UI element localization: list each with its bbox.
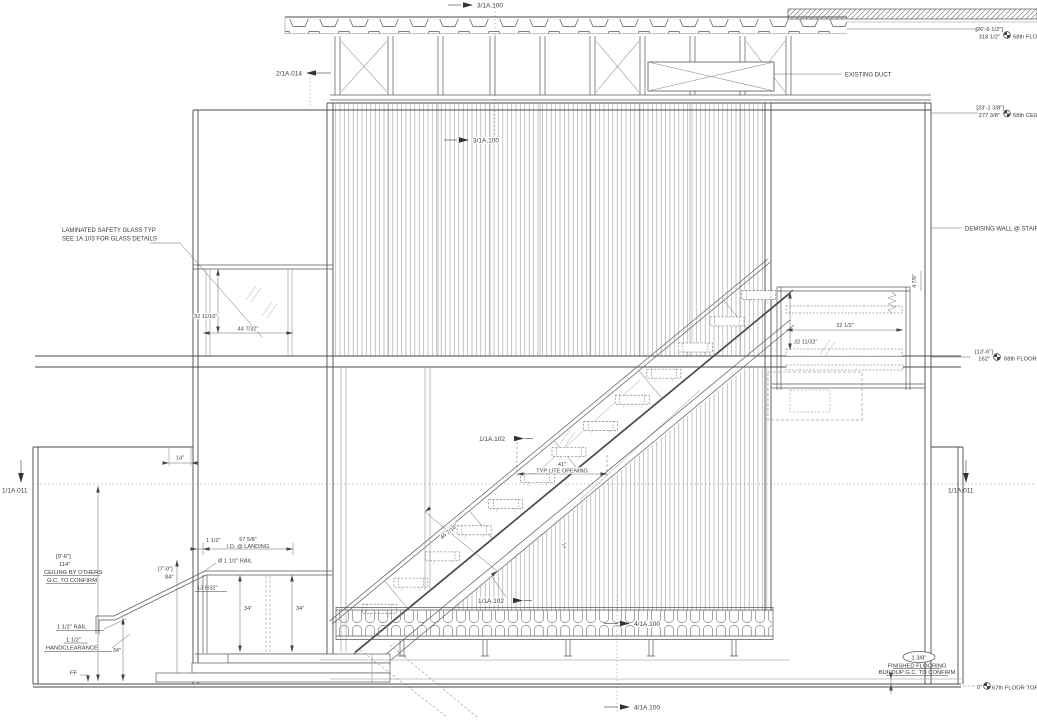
marker-label: 3/1A.100 bbox=[477, 3, 503, 10]
glass-note-line2: SEE 1A.103 FOR GLASS DETAILS bbox=[62, 237, 157, 243]
dim-84-bracket: [7'-0"] bbox=[158, 567, 173, 573]
dim-landing-width: 32 1/2" bbox=[836, 323, 854, 329]
marker-label: 3/1A.100 bbox=[473, 138, 499, 145]
level-name: 67th FLOOR TOP O bbox=[992, 686, 1037, 692]
dim-84-value: 84" bbox=[165, 575, 174, 581]
dim-lite-label: TYP LITE OPENING bbox=[536, 469, 588, 475]
dim-rail-thickness: 1 1/2" bbox=[206, 538, 220, 544]
level-bracket: [26'-6 1/2"] bbox=[975, 27, 1003, 33]
flooring-note: 1 3/8" FINISHED FLOORING BUILDUP G.C. TO… bbox=[879, 652, 956, 695]
dim-guard-height: 34" bbox=[296, 606, 304, 612]
level-name: 68th FLOO bbox=[1013, 35, 1037, 41]
lite-opening-dim: 41" TYP LITE OPENING bbox=[517, 442, 607, 476]
marker-label: 1/1A.102 bbox=[478, 598, 504, 605]
dim-glass-height: 32 11/16" bbox=[194, 314, 217, 320]
level-67th-floor-top: 0" 67th FLOOR TOP O bbox=[963, 683, 1037, 692]
flooring-dim: 1 3/8" bbox=[912, 656, 927, 662]
marker-label: 1/1A.102 bbox=[479, 436, 505, 443]
detail-marker-4-bottom: 4/1A.100 bbox=[604, 704, 660, 711]
landing-tread-band bbox=[786, 365, 903, 370]
detail-callout-box bbox=[768, 372, 862, 420]
slat-wall-lower bbox=[450, 368, 771, 611]
level-symbol bbox=[1004, 110, 1011, 117]
left-room: 14" bbox=[33, 447, 963, 684]
glass-note-line1: LAMINATED SAFETY GLASS TYP bbox=[62, 228, 156, 234]
marker-label: 4/1A.100 bbox=[634, 705, 660, 712]
ceiling-note-line2: G.C. TO CONFIRM bbox=[47, 578, 97, 584]
slat-wall-upper bbox=[333, 104, 765, 356]
dim-guard-height: 34" bbox=[244, 606, 252, 612]
marker-label: 1/1A.011 bbox=[2, 488, 28, 495]
bottom-steps bbox=[156, 645, 477, 717]
demising-label: DEMISING WALL @ STAIR C bbox=[965, 227, 1037, 233]
roof-deck bbox=[285, 9, 1037, 34]
ceiling-dim-bracket: [9'-6"] bbox=[56, 554, 71, 560]
steel-framing bbox=[330, 36, 931, 100]
upper-landing-guard: 32 11/16" 44 7/32" bbox=[193, 265, 333, 356]
dim-glass-width: 44 7/32" bbox=[238, 327, 259, 333]
section-marker-2: 2/1A.014 bbox=[276, 70, 331, 107]
level-bracket: [23'-1 3/8"] bbox=[976, 106, 1004, 112]
landing-tread-band bbox=[786, 349, 902, 356]
marker-label: 2/1A.014 bbox=[276, 71, 302, 78]
floor-slab-68 bbox=[35, 356, 961, 388]
x-brace bbox=[596, 41, 639, 92]
right-landing: 32 1/2" 32 11/32" 4 7/8" bbox=[768, 271, 921, 420]
corrugated-deck bbox=[285, 19, 847, 33]
stair-section-drawing: EXISTING DUCT 3/1A.100 2/1A.014 3/1A.100… bbox=[0, 0, 1037, 721]
x-brace bbox=[341, 41, 387, 92]
dim-wall: 14" bbox=[176, 456, 184, 462]
stair-section-sheet: EXISTING DUCT 3/1A.100 2/1A.014 3/1A.100… bbox=[0, 0, 1037, 721]
height-84-dim: [7'-0"] 84" bbox=[158, 560, 179, 680]
rail-label: 1 1/2" RAIL bbox=[57, 625, 87, 631]
detail-callout-box bbox=[790, 390, 830, 412]
level-value: 162" bbox=[978, 357, 990, 363]
level-value: 277 3/8" bbox=[979, 113, 1000, 119]
rail-diameter-label: Ø 1 1/2" RAIL bbox=[218, 559, 252, 565]
dim-lite-width: 41" bbox=[558, 462, 566, 468]
handclearance-label: HANDCLEARANCE bbox=[46, 646, 98, 652]
level-68th-floor: [26'-6 1/2"] 318 1/2" 68th FLOO bbox=[847, 27, 1037, 41]
marker-label: 1/1A.011 bbox=[948, 488, 974, 495]
dim-landing-id: 57 5/8" bbox=[239, 537, 257, 543]
level-68th-ceiling: [23'-1 3/8"] 277 3/8" 68th CEILI bbox=[931, 106, 1037, 120]
level-symbol bbox=[1004, 32, 1011, 39]
existing-duct: EXISTING DUCT bbox=[648, 62, 892, 91]
detail-marker-102-upper: 1/1A.102 bbox=[479, 436, 533, 443]
landing-tread-band bbox=[786, 306, 902, 313]
level-name: 68th CEILI bbox=[1013, 113, 1037, 119]
ceiling-note-line1: CEILING BY OTHERS bbox=[44, 570, 102, 576]
bench-slats bbox=[338, 610, 772, 636]
landing-dims: 1 1/2" 57 5/8" I.D. @ LANDING Ø 1 1/2" R… bbox=[191, 537, 305, 652]
dim-landing-id-label: I.D. @ LANDING bbox=[227, 544, 269, 550]
glass-note: LAMINATED SAFETY GLASS TYP SEE 1A.103 FO… bbox=[62, 228, 262, 337]
level-value: 318 1/2" bbox=[979, 35, 1000, 41]
dim-rail-height: 34" bbox=[113, 648, 121, 654]
level-symbol bbox=[984, 683, 991, 690]
dim-landing-height: 32 11/32" bbox=[794, 340, 817, 346]
level-value: 0" bbox=[977, 685, 982, 691]
ff-label: FF bbox=[70, 671, 78, 677]
ceiling-dim-value: 114" bbox=[59, 562, 70, 568]
concrete-topping-strip bbox=[788, 9, 1037, 19]
existing-duct-label: EXISTING DUCT bbox=[845, 73, 892, 79]
bench bbox=[320, 607, 790, 660]
level-name: 68th FLOOR TO bbox=[1004, 357, 1037, 363]
dim-landing-side: 4 7/8" bbox=[912, 274, 918, 288]
level-bracket: [13'-6"] bbox=[975, 350, 993, 356]
level-symbol bbox=[994, 354, 1001, 361]
marker-label: 4/1A.100 bbox=[634, 621, 660, 628]
handclearance-value: 1 1/2" bbox=[66, 638, 81, 644]
demising-wall-label: DEMISING WALL @ STAIR C bbox=[931, 227, 1037, 233]
glass-reflection bbox=[560, 430, 575, 446]
bench-legs bbox=[398, 640, 738, 656]
